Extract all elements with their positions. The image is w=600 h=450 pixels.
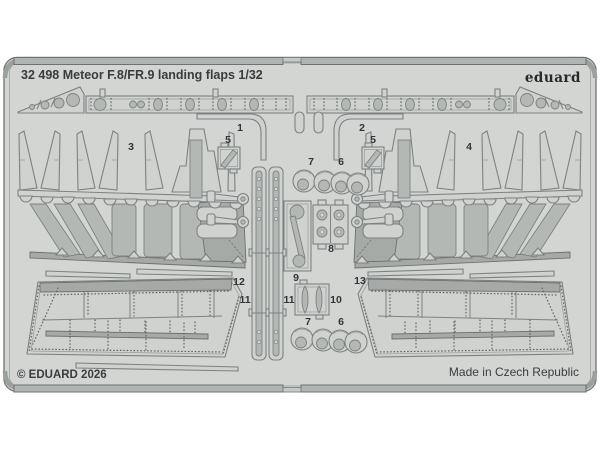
catalog-title: 32 498 Meteor F.8/FR.9 landing flaps 1/3… [21, 68, 263, 82]
part-number-label: 4 [466, 141, 472, 153]
copyright-text: © EDUARD 2026 [17, 369, 107, 381]
part-number-label: 6 [338, 316, 344, 328]
part-number-label: 1 [237, 122, 243, 134]
buckle-part-5-right [362, 143, 384, 173]
ring-set-parts-7-6-bottom [291, 328, 367, 353]
made-in-text: Made in Czech Republic [449, 365, 579, 379]
part-number-label: 7 [308, 156, 314, 168]
part-number-label: 6 [338, 156, 344, 168]
part-number-label: 7 [305, 316, 311, 328]
strip-part-11-b [266, 167, 286, 360]
flap-skin-part-12 [27, 269, 242, 357]
part-number-label: 13 [354, 275, 366, 287]
strip-part-11-a [249, 167, 269, 360]
part-number-label: 11 [283, 294, 294, 306]
part-number-label: 5 [225, 134, 231, 146]
part-number-label: 11 [239, 294, 250, 306]
buckle-part-5-left [218, 143, 240, 173]
actuator-part-9 [284, 201, 311, 271]
bracket-part-8 [313, 200, 348, 249]
ring-set-parts-7-6-top [293, 170, 369, 195]
part-number-label: 3 [128, 141, 134, 153]
brand-logo: eduard [525, 70, 581, 86]
part-number-label: 12 [233, 276, 245, 288]
part-number-label: 8 [328, 243, 334, 255]
photo-etch-fret-sheet: 32 498 Meteor F.8/FR.9 landing flaps 1/3… [0, 0, 600, 450]
part-number-label: 5 [370, 134, 376, 146]
part-number-label: 10 [330, 294, 342, 306]
blade-part-10 [295, 280, 329, 319]
part-number-label: 2 [359, 122, 365, 134]
product-photo: 32 498 Meteor F.8/FR.9 landing flaps 1/3… [0, 0, 600, 450]
part-number-label: 9 [293, 272, 299, 284]
flap-skin-part-13 [358, 269, 573, 357]
